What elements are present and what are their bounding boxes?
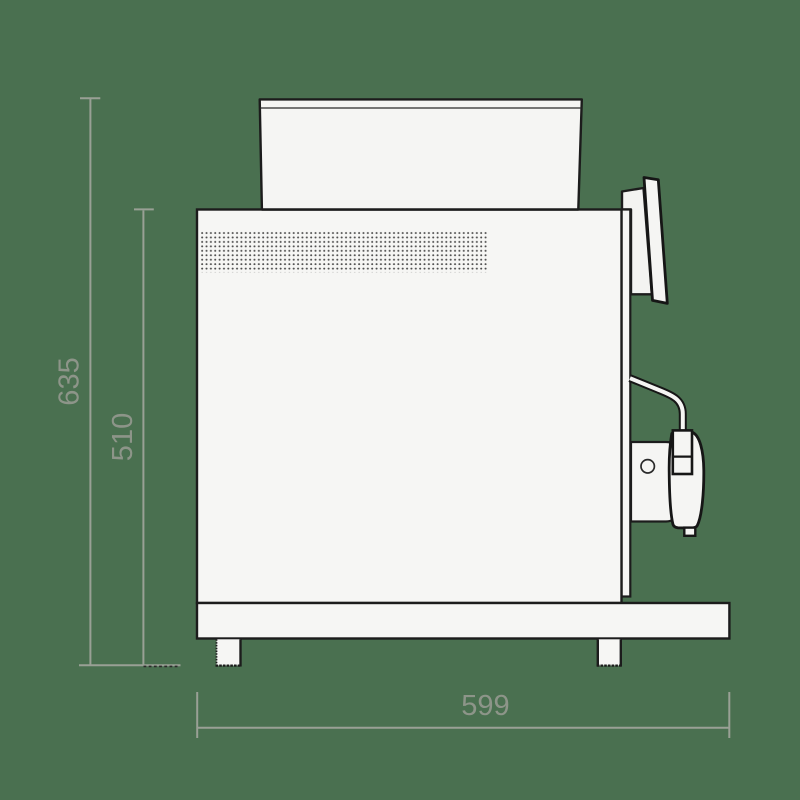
svg-text:510: 510 xyxy=(107,413,139,461)
svg-text:635: 635 xyxy=(54,357,86,405)
svg-text:599: 599 xyxy=(461,690,509,722)
